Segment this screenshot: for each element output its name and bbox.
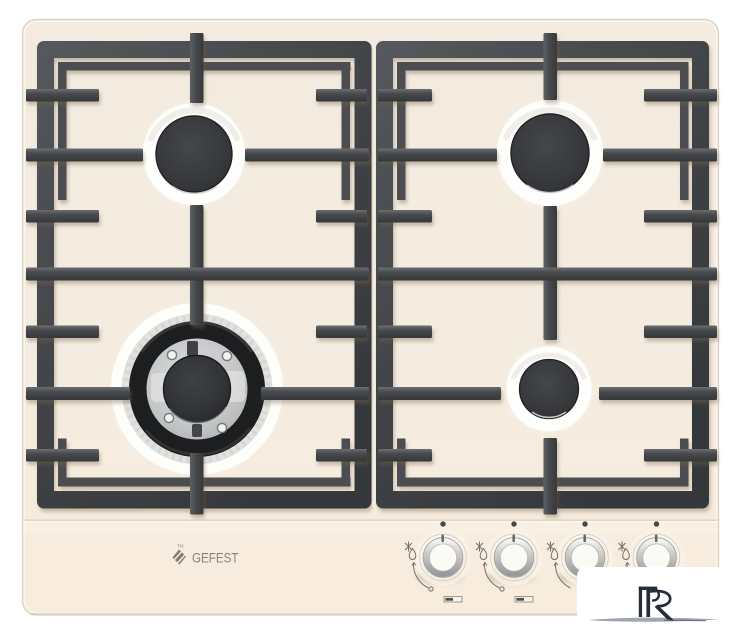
svg-text:TM: TM: [177, 544, 184, 549]
svg-text:GEFEST: GEFEST: [192, 551, 239, 566]
